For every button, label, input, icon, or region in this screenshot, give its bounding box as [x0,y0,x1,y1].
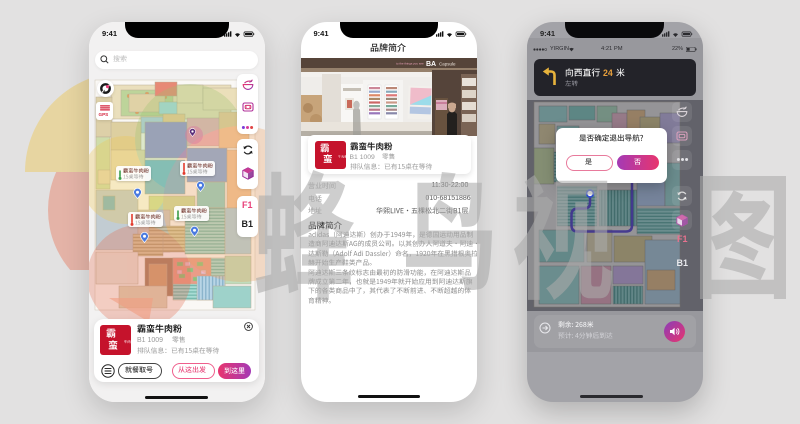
svg-text:Capsule: Capsule [439,62,456,67]
svg-text:BA: BA [426,61,436,68]
svg-text:to the things you see: to the things you see [396,62,424,66]
